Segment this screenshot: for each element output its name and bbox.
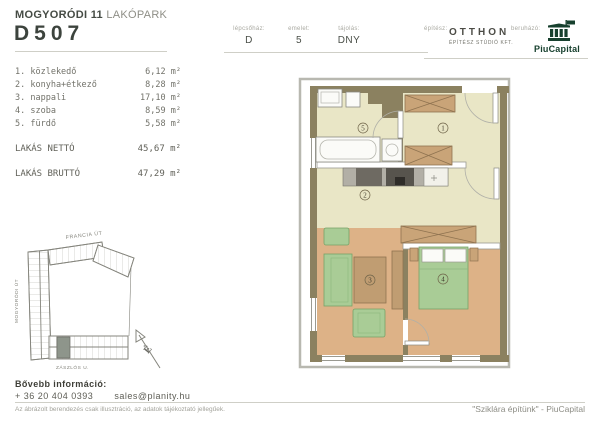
divider (424, 58, 588, 59)
kitchen-counter (343, 168, 448, 186)
meta-floor-value: 5 (274, 35, 324, 46)
street-left-label: MOGYORÓDI ÚT (13, 279, 20, 323)
meta-floor-label: emelet: (274, 26, 324, 32)
room-list: 1. közlekedő 6,12 m² 2. konyha+étkező 8,… (15, 66, 181, 131)
room-name: 3. nappali (15, 92, 66, 105)
meta-orientation-value: DNY (324, 35, 374, 46)
site-highlighted-unit (57, 337, 70, 358)
meta-staircase-label: lépcsőház: (224, 26, 274, 32)
project-title-light: LAKÓPARK (106, 9, 167, 21)
north-arrow-icon: É (136, 330, 160, 368)
meta-staircase-value: D (224, 35, 274, 46)
room-area: 8,59 m² (145, 105, 181, 118)
site-building-outline (28, 242, 134, 360)
room-row: 1. közlekedő 6,12 m² (15, 66, 181, 79)
north-label: É (141, 343, 155, 356)
unit-id: D507 (14, 22, 84, 46)
room-row: 3. nappali 17,10 m² (15, 92, 181, 105)
contact-row: + 36 20 404 0393 sales@planity.hu (15, 391, 190, 401)
divider (15, 402, 585, 403)
total-value: 47,29 m² (138, 168, 181, 181)
floorplan-sheet: MOGYORÓDI 11 LAKÓPARK D507 lépcsőház: D … (0, 0, 600, 424)
total-label: LAKÁS NETTÓ (15, 143, 75, 156)
room-row: 4. szoba 8,59 m² (15, 105, 181, 118)
room-row: 2. konyha+étkező 8,28 m² (15, 79, 181, 92)
project-title: MOGYORÓDI 11 LAKÓPARK (15, 9, 167, 21)
room-area: 5,58 m² (145, 118, 181, 131)
developer-logo-text: PiuCapital (534, 44, 580, 54)
room-name: 4. szoba (15, 105, 56, 118)
site-plan: FRANCIA ÚT MOGYORÓDI ÚT ZÁSZLÓS U. É (8, 228, 183, 380)
room-area: 8,28 m² (145, 79, 181, 92)
room-area: 17,10 m² (140, 92, 181, 105)
meta-staircase: lépcsőház: D (224, 26, 274, 46)
company-slogan: "Sziklára építünk" - PiuCapital (385, 404, 585, 414)
total-value: 45,67 m² (138, 143, 181, 156)
total-label: LAKÁS BRUTTÓ (15, 168, 80, 181)
street-bottom-label: ZÁSZLÓS U. (56, 364, 89, 371)
total-row-gross: LAKÁS BRUTTÓ 47,29 m² (15, 168, 181, 181)
architect-label: építész: (424, 26, 447, 32)
room-name: 5. fürdő (15, 118, 56, 131)
architect-logo-subtext: ÉPÍTÉSZ STÚDIÓ KFT. (449, 40, 513, 46)
area-totals: LAKÁS NETTÓ 45,67 m² LAKÁS BRUTTÓ 47,29 … (15, 143, 181, 193)
meta-orientation: tájolás: DNY (324, 26, 374, 46)
street-top-label: FRANCIA ÚT (65, 230, 103, 241)
room-label-1: 1 (441, 125, 445, 133)
room-name: 2. konyha+étkező (15, 79, 97, 92)
project-title-bold: MOGYORÓDI 11 (15, 9, 103, 21)
room-label-5: 5 (361, 125, 365, 133)
meta-floor: emelet: 5 (274, 26, 324, 46)
developer-label: beruházó: (511, 26, 540, 32)
email-address: sales@planity.hu (114, 391, 190, 401)
floor-plan: 1 2 3 4 5 (296, 73, 514, 373)
meta-orientation-label: tájolás: (324, 26, 374, 32)
room-name: 1. közlekedő (15, 66, 76, 79)
more-info-label: Bővebb információ: (15, 379, 107, 389)
disclaimer-text: Az ábrázolt berendezés csak illusztráció… (15, 406, 225, 413)
divider (15, 51, 167, 52)
floor-areas (317, 93, 500, 355)
room-label-4: 4 (441, 276, 445, 284)
room-row: 5. fürdő 5,58 m² (15, 118, 181, 131)
unit-meta: lépcsőház: D emelet: 5 tájolás: DNY (224, 26, 374, 46)
architect-logo-text: OTTHON (449, 27, 509, 38)
divider (224, 52, 428, 53)
room-area: 6,12 m² (145, 66, 181, 79)
room-label-3: 3 (368, 277, 372, 285)
total-row-net: LAKÁS NETTÓ 45,67 m² (15, 143, 181, 156)
phone-number: + 36 20 404 0393 (15, 391, 93, 401)
bank-building-icon (542, 20, 576, 42)
room-label-2: 2 (363, 192, 367, 200)
